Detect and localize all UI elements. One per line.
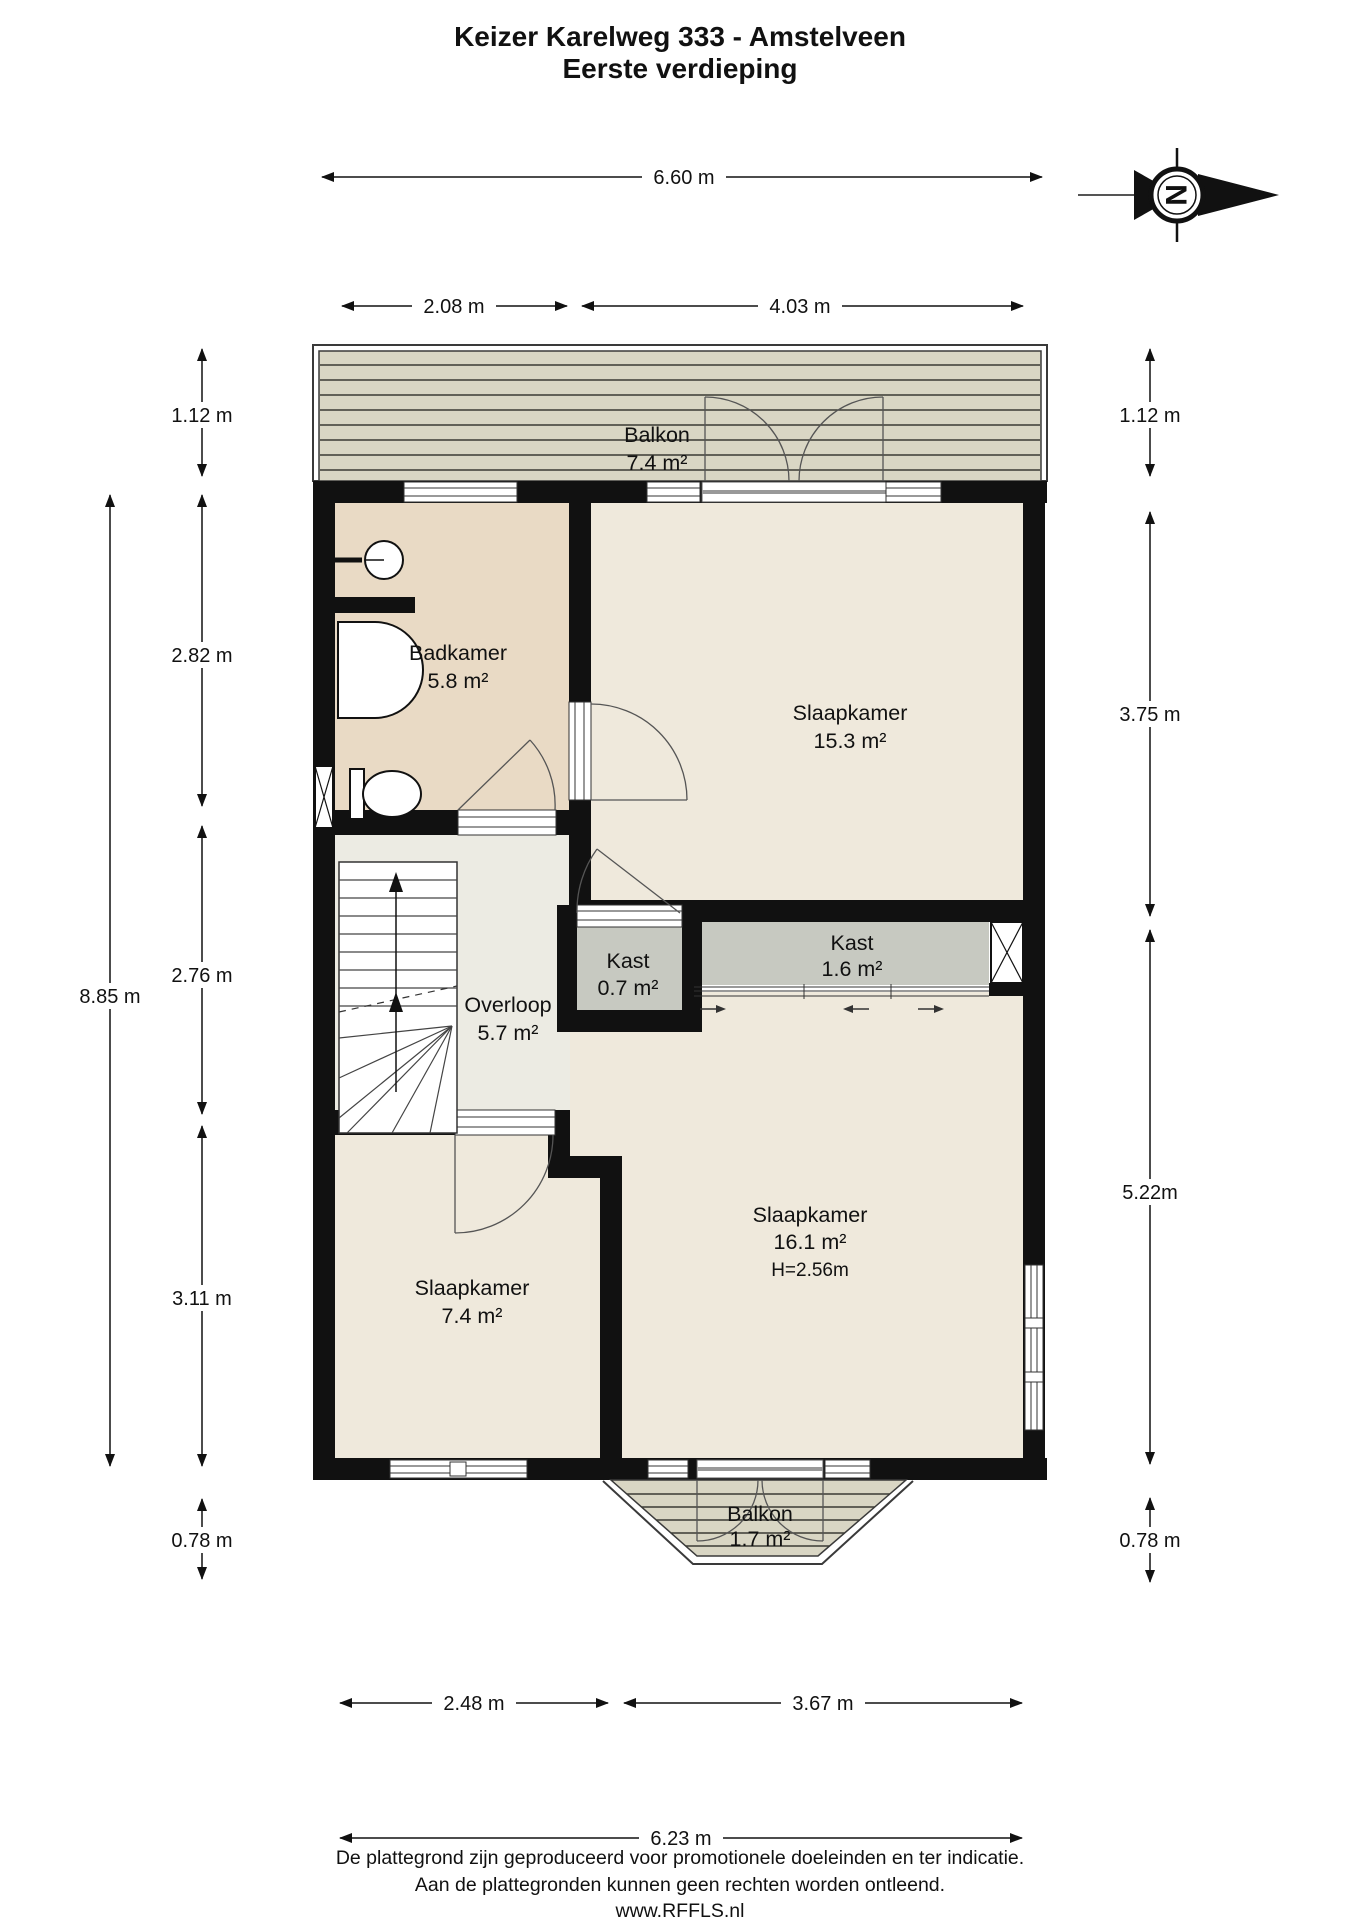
dim-label: 3.75 m <box>1119 704 1180 726</box>
dimension-top-right: 4.03 m <box>582 293 1023 319</box>
door-opening-bathroom <box>458 810 556 835</box>
room-area: 15.3 m² <box>814 729 887 753</box>
dimension-left-4: 3.11 m <box>160 1126 244 1466</box>
room-name: Kast <box>606 949 649 973</box>
dimension-left-3: 2.76 m <box>160 826 244 1114</box>
dimension-right-4: 0.78 m <box>1108 1498 1192 1582</box>
window-right <box>1025 1265 1043 1430</box>
dimension-left-total: 8.85 m <box>68 495 152 1466</box>
dimension-right-1: 1.12 m <box>1108 349 1192 476</box>
dim-label: 2.82 m <box>171 645 232 667</box>
dim-label: 2.48 m <box>443 1693 504 1715</box>
dim-label: 3.67 m <box>792 1693 853 1715</box>
room-area: 1.6 m² <box>822 957 883 981</box>
window-bottom-1 <box>390 1460 527 1478</box>
floorplan-canvas: Keizer Karelweg 333 - Amstelveen Eerste … <box>0 0 1358 1920</box>
dimension-bottom-right: 3.67 m <box>624 1690 1022 1716</box>
dimension-left-5: 0.78 m <box>160 1499 244 1579</box>
room-area: 0.7 m² <box>598 976 659 1000</box>
dim-label: 1.12 m <box>171 405 232 427</box>
title-line-1: Keizer Karelweg 333 - Amstelveen <box>454 21 906 52</box>
dimension-right-2: 3.75 m <box>1108 512 1192 916</box>
dimension-top-total: 6.60 m <box>322 164 1042 190</box>
staircase <box>339 862 457 1133</box>
dimension-top-left: 2.08 m <box>342 293 567 319</box>
footer-line-2: Aan de plattegronden kunnen geen rechten… <box>415 1874 945 1896</box>
shower-tray <box>338 622 423 718</box>
footer-line-1: De plattegrond zijn geproduceerd voor pr… <box>336 1847 1024 1869</box>
room-area: 5.7 m² <box>478 1021 539 1045</box>
room-name: Balkon <box>727 1502 793 1526</box>
window-top-2 <box>647 482 700 502</box>
dim-label: 2.76 m <box>171 965 232 987</box>
door-opening-bedroom3 <box>455 1110 555 1135</box>
window-bottom-2 <box>648 1460 688 1478</box>
dim-label: 2.08 m <box>423 296 484 318</box>
dim-label: 3.11 m <box>172 1288 232 1310</box>
dim-label: 8.85 m <box>79 986 140 1008</box>
room-ceiling-height: H=2.56m <box>771 1260 849 1281</box>
page-title: Keizer Karelweg 333 - Amstelveen Eerste … <box>454 21 906 84</box>
window-top-3 <box>886 482 941 502</box>
room-area: 1.7 m² <box>730 1527 791 1551</box>
footer-website: www.RFFLS.nl <box>615 1900 745 1920</box>
dim-label: 6.60 m <box>653 167 714 189</box>
floorplan-page: Keizer Karelweg 333 - Amstelveen Eerste … <box>0 0 1358 1920</box>
room-area: 16.1 m² <box>774 1230 847 1254</box>
dim-label: 0.78 m <box>1119 1530 1180 1552</box>
dimension-left-2: 2.82 m <box>160 495 244 806</box>
room-name: Slaapkamer <box>793 701 908 725</box>
room-name: Balkon <box>624 423 690 447</box>
dimension-bottom-left: 2.48 m <box>340 1690 608 1716</box>
door-opening-top-balcony <box>702 482 886 502</box>
door-opening-bedroom1 <box>569 702 591 800</box>
window-bottom-3 <box>825 1460 870 1478</box>
bathroom-partition-stub <box>335 597 415 613</box>
room-name: Slaapkamer <box>753 1203 868 1227</box>
shaft-right <box>991 922 1023 983</box>
room-name: Badkamer <box>409 641 507 665</box>
room-area: 7.4 m² <box>442 1304 503 1328</box>
dimension-right-3: 5.22m <box>1112 930 1188 1464</box>
room-name: Kast <box>830 931 873 955</box>
window-top-1 <box>404 482 517 502</box>
shaft-left <box>315 766 333 828</box>
dim-label: 0.78 m <box>171 1530 232 1552</box>
dim-label: 1.12 m <box>1119 405 1180 427</box>
room-area: 7.4 m² <box>627 451 688 475</box>
door-opening-bottom-balcony <box>697 1460 823 1478</box>
room-area: 5.8 m² <box>428 669 489 693</box>
dim-label: 4.03 m <box>769 296 830 318</box>
room-name: Slaapkamer <box>415 1276 530 1300</box>
title-line-2: Eerste verdieping <box>563 53 798 84</box>
label-balkon-onder: Balkon 1.7 m² <box>727 1502 793 1551</box>
footer-disclaimer: De plattegrond zijn geproduceerd voor pr… <box>336 1847 1024 1920</box>
compass-rose-icon: N <box>1078 148 1279 242</box>
dimension-left-1: 1.12 m <box>160 349 244 476</box>
dim-label: 5.22m <box>1122 1182 1178 1204</box>
room-name: Overloop <box>464 993 551 1017</box>
door-opening-closet-small <box>577 905 682 927</box>
toilet <box>350 769 421 819</box>
compass-north-letter: N <box>1159 184 1192 206</box>
